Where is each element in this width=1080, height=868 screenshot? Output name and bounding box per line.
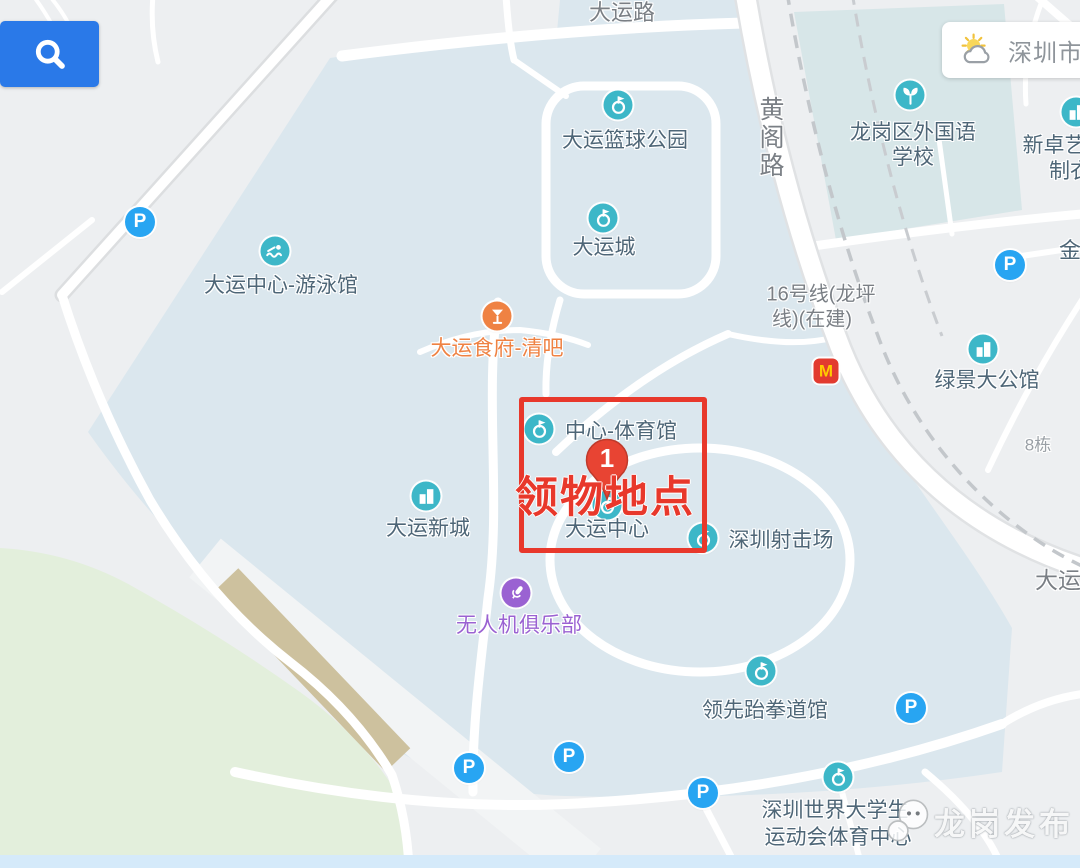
sun-cloud-icon bbox=[956, 32, 1000, 68]
weather-widget[interactable]: 深圳市 bbox=[942, 22, 1080, 78]
pickup-location-label: 领物地点 bbox=[515, 463, 695, 525]
weather-city-label: 深圳市 bbox=[1008, 33, 1080, 68]
search-icon bbox=[32, 36, 68, 72]
search-button[interactable] bbox=[0, 21, 99, 87]
pickup-annotation: 1 领物地点 bbox=[0, 0, 1080, 868]
bottom-strip bbox=[0, 855, 1080, 868]
map-screenshot: 大运篮球公园大运城龙岗区外国语学校新卓艺制衣大运中心-游泳馆大运食府-清吧绿景大… bbox=[0, 0, 1080, 868]
